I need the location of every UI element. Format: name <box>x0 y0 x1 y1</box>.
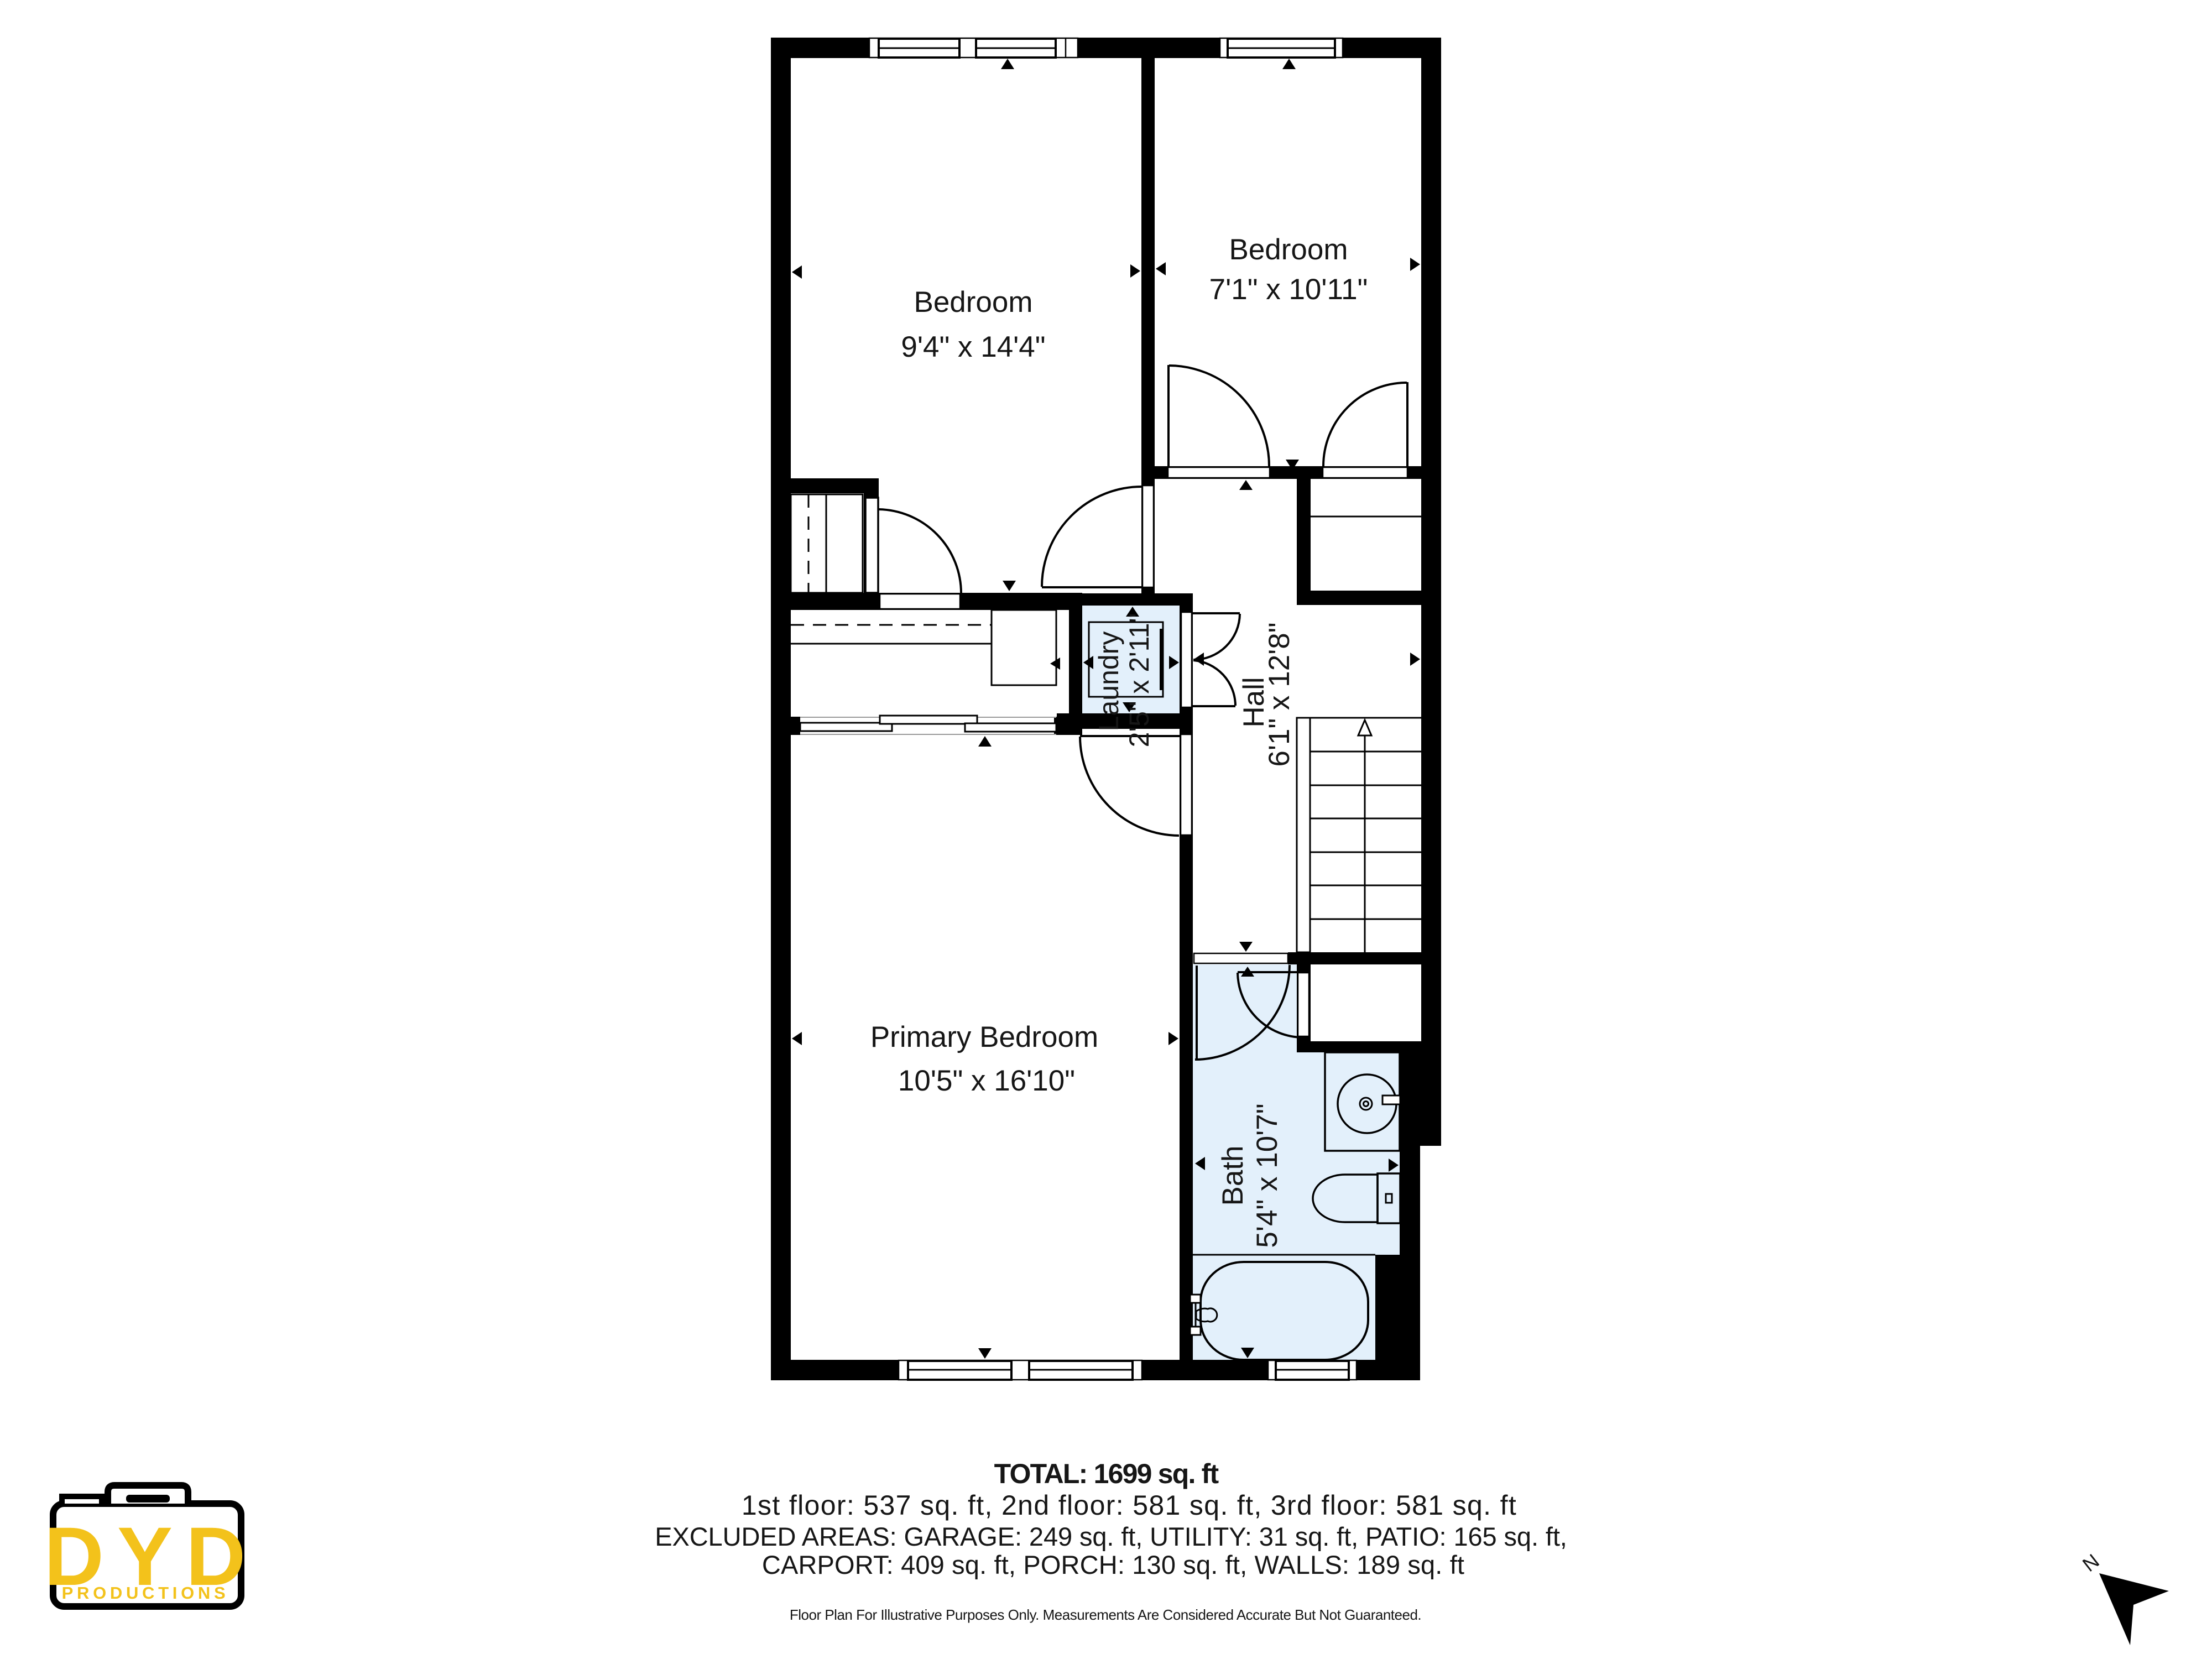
svg-text:2'5" x 2'11": 2'5" x 2'11" <box>1124 613 1155 748</box>
svg-text:TOTAL: 1699 sq. ft: TOTAL: 1699 sq. ft <box>994 1458 1219 1489</box>
svg-text:PRODUCTIONS: PRODUCTIONS <box>62 1583 229 1603</box>
svg-text:Bedroom: Bedroom <box>914 286 1032 319</box>
svg-text:9'4" x 14'4": 9'4" x 14'4" <box>901 331 1045 363</box>
svg-text:Bedroom: Bedroom <box>1229 233 1348 266</box>
svg-text:Floor Plan For Illustrative Pu: Floor Plan For Illustrative Purposes Onl… <box>790 1606 1421 1623</box>
svg-text:Bath: Bath <box>1217 1145 1249 1206</box>
svg-text:CARPORT: 409 sq. ft, PORCH: 13: CARPORT: 409 sq. ft, PORCH: 130 sq. ft, … <box>762 1550 1464 1579</box>
svg-text:10'5" x 16'10": 10'5" x 16'10" <box>898 1065 1075 1097</box>
svg-text:7'1" x 10'11": 7'1" x 10'11" <box>1209 273 1368 306</box>
svg-text:1st floor: 537 sq. ft, 2nd flo: 1st floor: 537 sq. ft, 2nd floor: 581 sq… <box>742 1490 1517 1521</box>
svg-text:EXCLUDED AREAS: GARAGE: 249 sq: EXCLUDED AREAS: GARAGE: 249 sq. ft, UTIL… <box>655 1522 1567 1551</box>
svg-text:6'1" x 12'8": 6'1" x 12'8" <box>1263 622 1296 766</box>
svg-text:Primary Bedroom: Primary Bedroom <box>870 1021 1098 1053</box>
svg-text:5'4" x 10'7": 5'4" x 10'7" <box>1251 1103 1284 1248</box>
svg-text:Laundry: Laundry <box>1093 632 1124 732</box>
